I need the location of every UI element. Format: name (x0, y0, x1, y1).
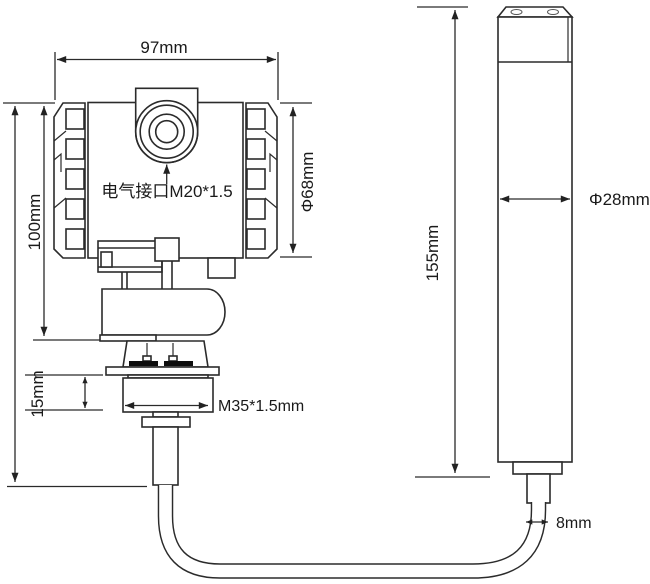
post-block (155, 238, 179, 261)
neck-section (123, 341, 208, 367)
probe-step (513, 462, 562, 474)
screw-right (164, 361, 193, 366)
screw-left (129, 361, 158, 366)
label-nut-height: 15mm (28, 370, 47, 417)
label-left-height: 100mm (25, 194, 44, 251)
dim-155mm: 155mm (415, 7, 490, 477)
probe-top-hole-right (548, 10, 559, 15)
right-hang-block (208, 258, 235, 278)
probe-top-hole-left (511, 10, 522, 15)
rounded-body (102, 289, 225, 335)
dimension-drawing-canvas: 97mm 100mm 15mm M35*1.5mm 电气接口M20*1.5 Φ6… (0, 0, 650, 584)
mounting-nut (123, 378, 213, 412)
label-probe-length: 155mm (423, 225, 442, 282)
label-probe-diameter: Φ28mm (589, 190, 650, 209)
left-fin-cover (54, 103, 85, 258)
label-electrical-interface: 电气接口M20*1.5 (101, 182, 232, 201)
probe-top-face (498, 7, 572, 17)
dim-15mm: 15mm (25, 370, 103, 417)
transmitter-drawing (54, 88, 277, 485)
label-cable-diameter: 8mm (556, 515, 592, 532)
probe-body (498, 17, 572, 462)
label-mounting-thread: M35*1.5mm (218, 398, 304, 415)
cable-drawing (166, 485, 539, 571)
dim-68mm: Φ68mm (280, 103, 317, 257)
dimension-drawing: 97mm 100mm 15mm M35*1.5mm 电气接口M20*1.5 Φ6… (0, 0, 650, 584)
flange-plate (106, 367, 219, 375)
probe-nipple (527, 474, 550, 503)
collar (142, 417, 190, 427)
label-top-width: 97mm (140, 38, 187, 57)
right-fin-cover (246, 103, 277, 258)
stem (153, 427, 178, 485)
probe-drawing (498, 7, 572, 503)
label-housing-diameter: Φ68mm (298, 152, 317, 213)
body-base-plate (100, 335, 156, 341)
electrical-port (136, 88, 198, 162)
